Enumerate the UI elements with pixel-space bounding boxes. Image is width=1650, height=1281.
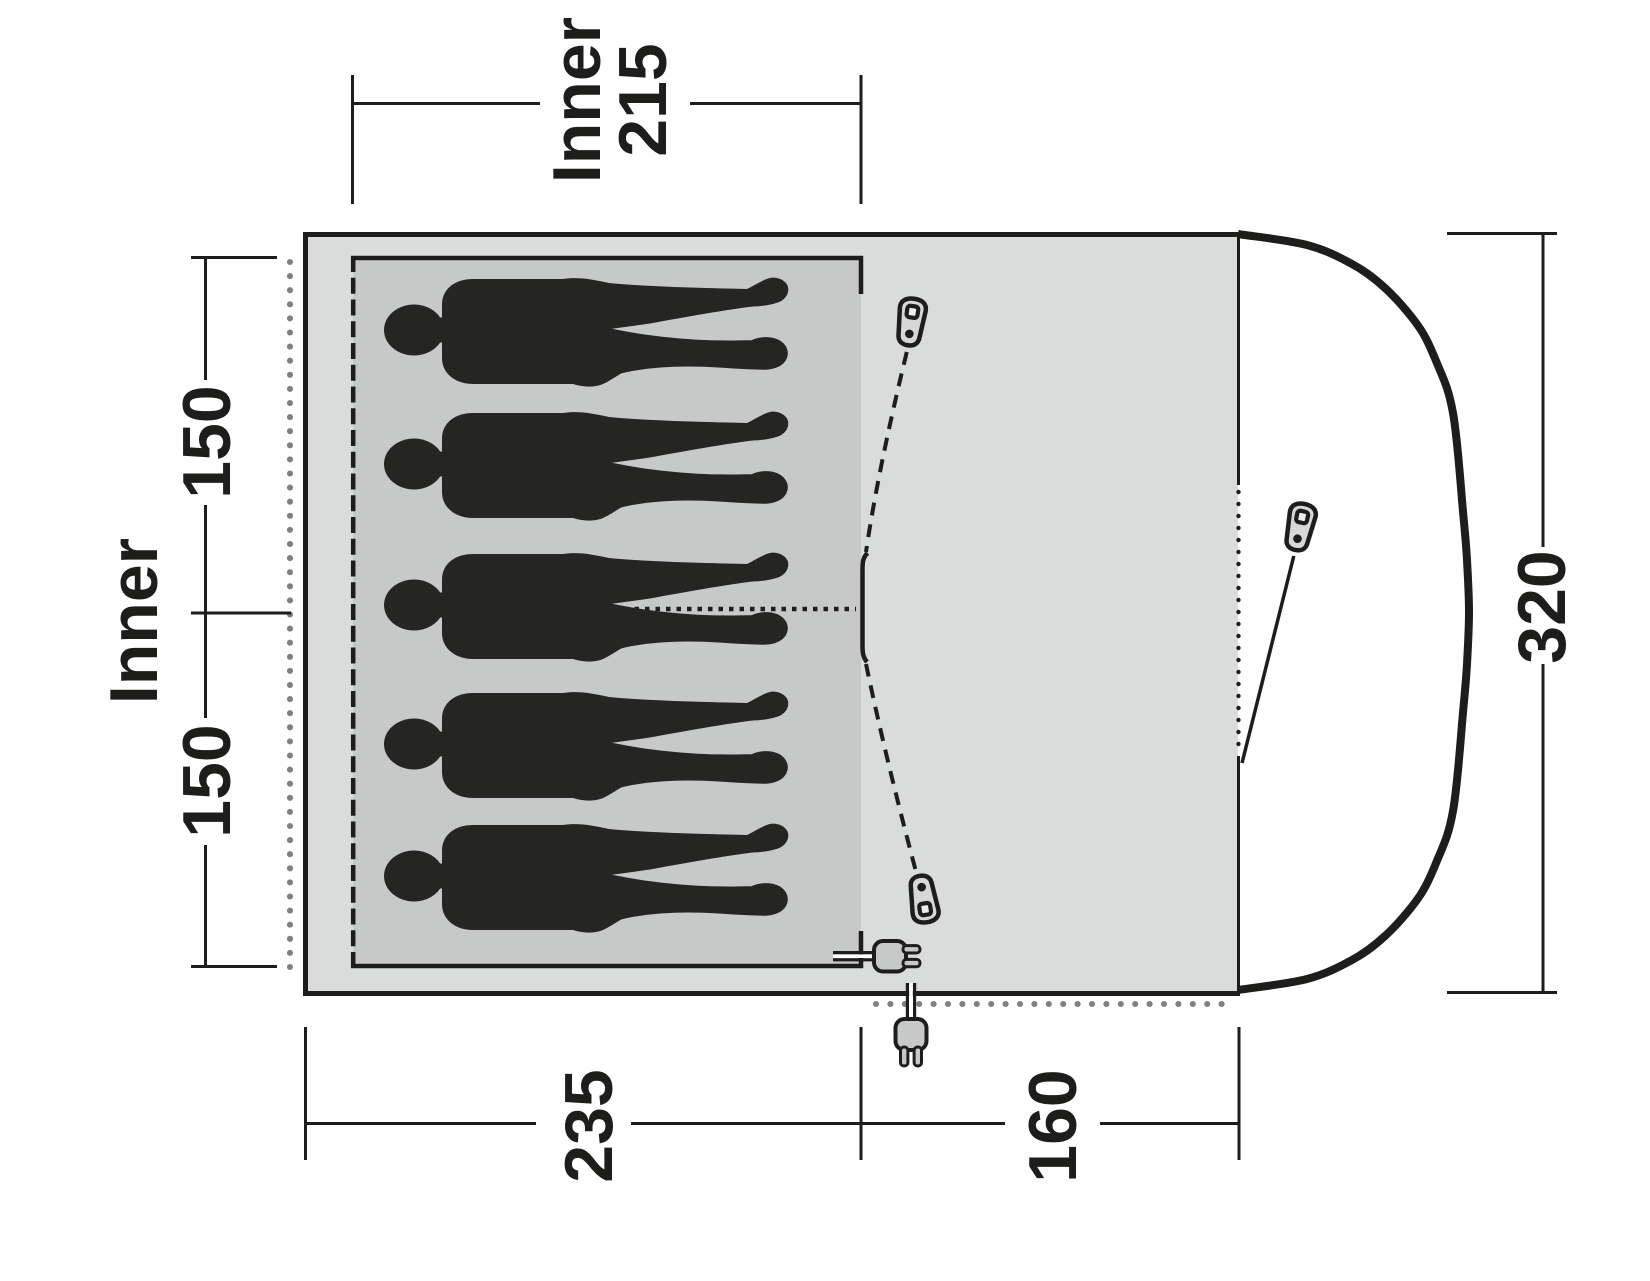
svg-text:Inner: Inner <box>96 538 172 704</box>
svg-text:160: 160 <box>1015 1069 1091 1182</box>
svg-text:150: 150 <box>169 385 245 498</box>
svg-text:235: 235 <box>551 1069 627 1182</box>
svg-text:Inner: Inner <box>539 17 615 183</box>
svg-text:320: 320 <box>1504 550 1580 663</box>
svg-text:215: 215 <box>605 43 681 156</box>
svg-text:150: 150 <box>169 724 245 837</box>
